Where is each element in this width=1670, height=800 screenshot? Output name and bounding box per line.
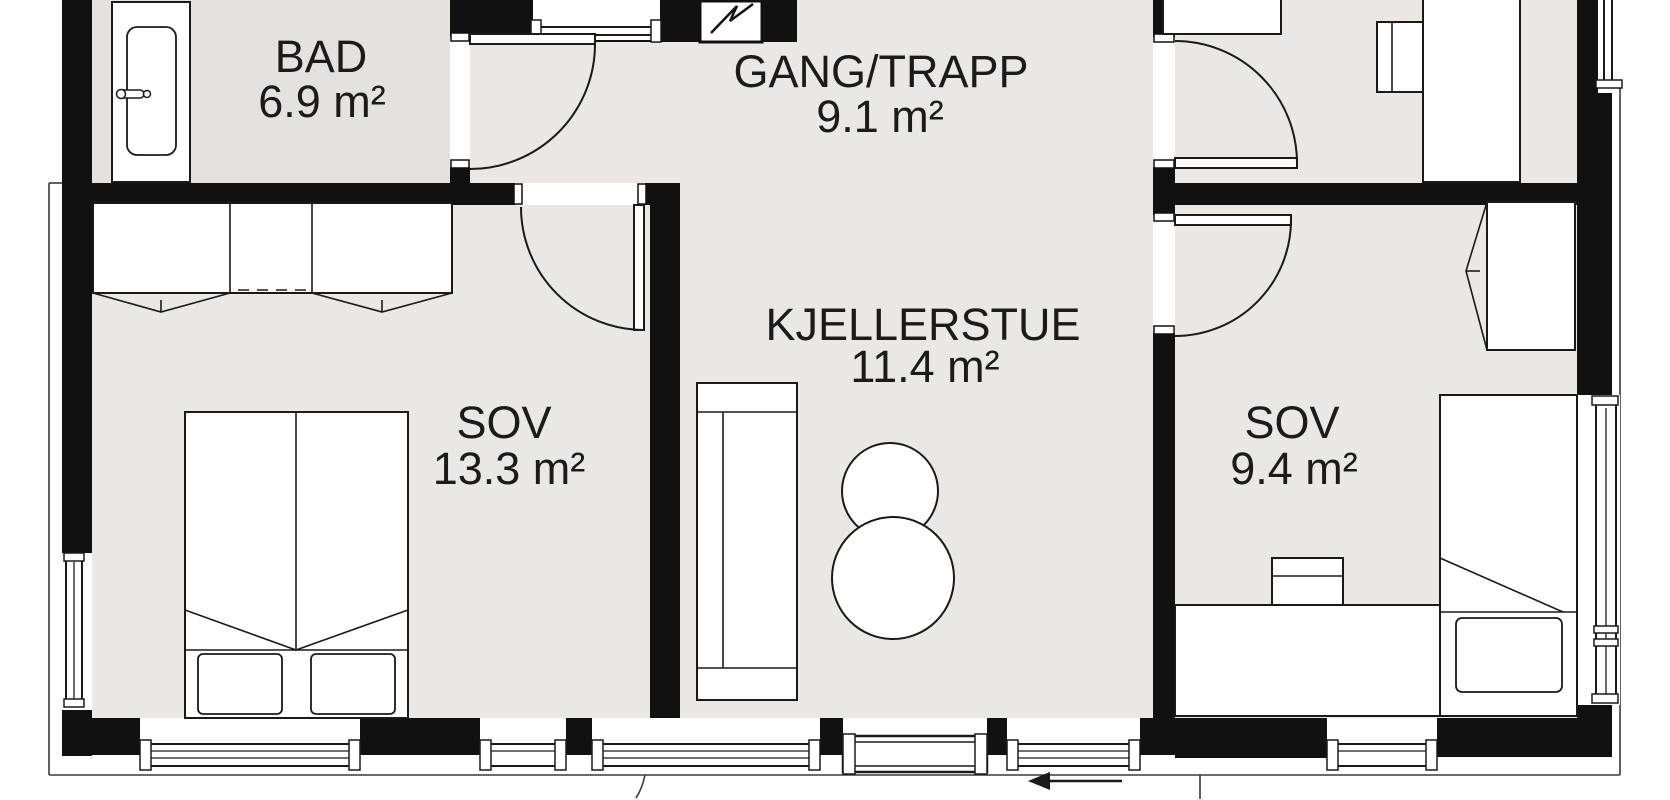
room-label-gang-trapp: GANG/TRAPP (733, 46, 1028, 97)
door-leaf (634, 205, 644, 330)
desk (1423, 0, 1520, 182)
pillow (311, 654, 395, 714)
pillow (198, 654, 282, 714)
fuse-box-icon (700, 1, 762, 42)
window (1577, 395, 1620, 705)
room-area-sov-1: 13.3 m² (433, 443, 586, 494)
room-area-sov-2: 9.4 m² (1230, 443, 1358, 494)
window (1596, 0, 1622, 88)
room-label-bad: BAD (275, 31, 368, 82)
double-bed (185, 412, 408, 718)
pillow (1456, 618, 1562, 692)
sofa (697, 383, 797, 700)
floor-plan: BAD 6.9 m² GANG/TRAPP 9.1 m² KJELLERSTUE… (0, 0, 1670, 800)
room-area-bad: 6.9 m² (258, 76, 386, 127)
room-label-sov-1: SOV (456, 397, 551, 448)
chair (1272, 558, 1343, 605)
room-area-gang-trapp: 9.1 m² (816, 91, 944, 142)
room-label-sov-2: SOV (1244, 397, 1339, 448)
door-leaf (1175, 215, 1291, 225)
chair (1377, 22, 1423, 92)
door-leaf (470, 34, 595, 44)
room-area-kjellerstue: 11.4 m² (850, 341, 999, 392)
window (62, 553, 92, 710)
bathtub (112, 2, 190, 182)
door-leaf (1175, 158, 1297, 168)
single-bed (1440, 395, 1577, 716)
desk (1175, 605, 1440, 716)
cabinet (1163, 0, 1281, 34)
